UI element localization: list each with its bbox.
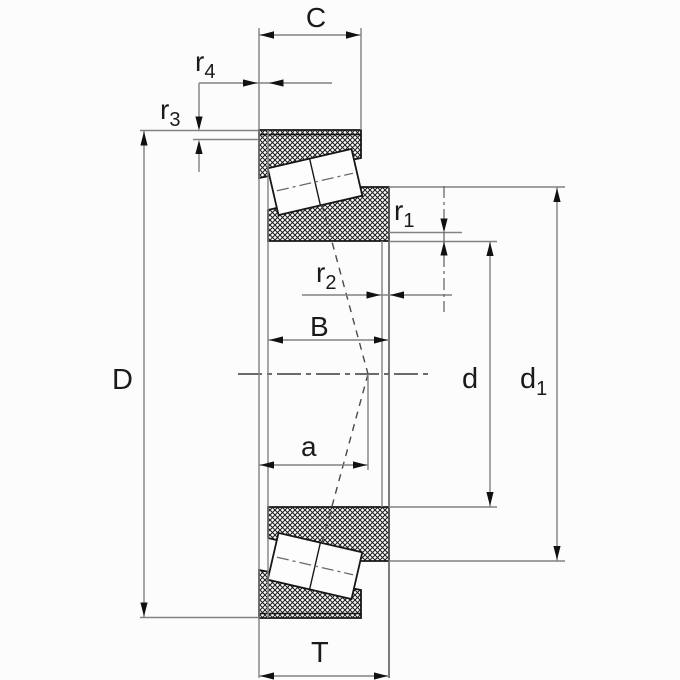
label-D: D (112, 364, 133, 396)
arrow-B-left (269, 336, 283, 343)
arrow-T-left (260, 672, 274, 679)
arrow-a-right (353, 461, 367, 468)
arrow-d1-bottom (553, 546, 560, 560)
arrow-T-right (374, 672, 388, 679)
arrow-r2-left (367, 291, 381, 298)
label-B: B (310, 311, 329, 342)
arrow-d-top (486, 242, 493, 256)
label-T: T (311, 637, 329, 669)
label-C: C (306, 2, 326, 33)
arrow-D-bottom (140, 603, 147, 617)
arrow-r2-right (390, 291, 404, 298)
label-r2: r2 (316, 257, 336, 294)
arrow-C-left (260, 31, 274, 39)
arrow-r3-up (195, 140, 202, 154)
arrow-D-top (140, 132, 147, 146)
drawing-canvas: C r4 r3 D B r2 r1 a d d1 T (0, 0, 680, 680)
arrow-a-left (260, 461, 274, 468)
arrow-r1-down (440, 219, 447, 233)
arrow-d-bottom (486, 492, 493, 506)
arrow-B-right (374, 336, 388, 343)
label-r4: r4 (195, 46, 215, 83)
arrow-r3-down (195, 117, 202, 131)
arrow-C-right (346, 31, 360, 39)
label-d: d (462, 363, 478, 395)
bearing-dimension-drawing: C r4 r3 D B r2 r1 a d d1 T (0, 0, 680, 680)
label-a: a (301, 431, 317, 462)
label-d1: d1 (520, 363, 547, 400)
label-r1: r1 (394, 195, 414, 232)
label-r3: r3 (160, 94, 180, 131)
arrow-r1-up (440, 242, 447, 256)
arrow-r4-left (243, 79, 258, 86)
arrow-d1-top (553, 188, 560, 202)
arrow-r4-right (269, 79, 284, 86)
